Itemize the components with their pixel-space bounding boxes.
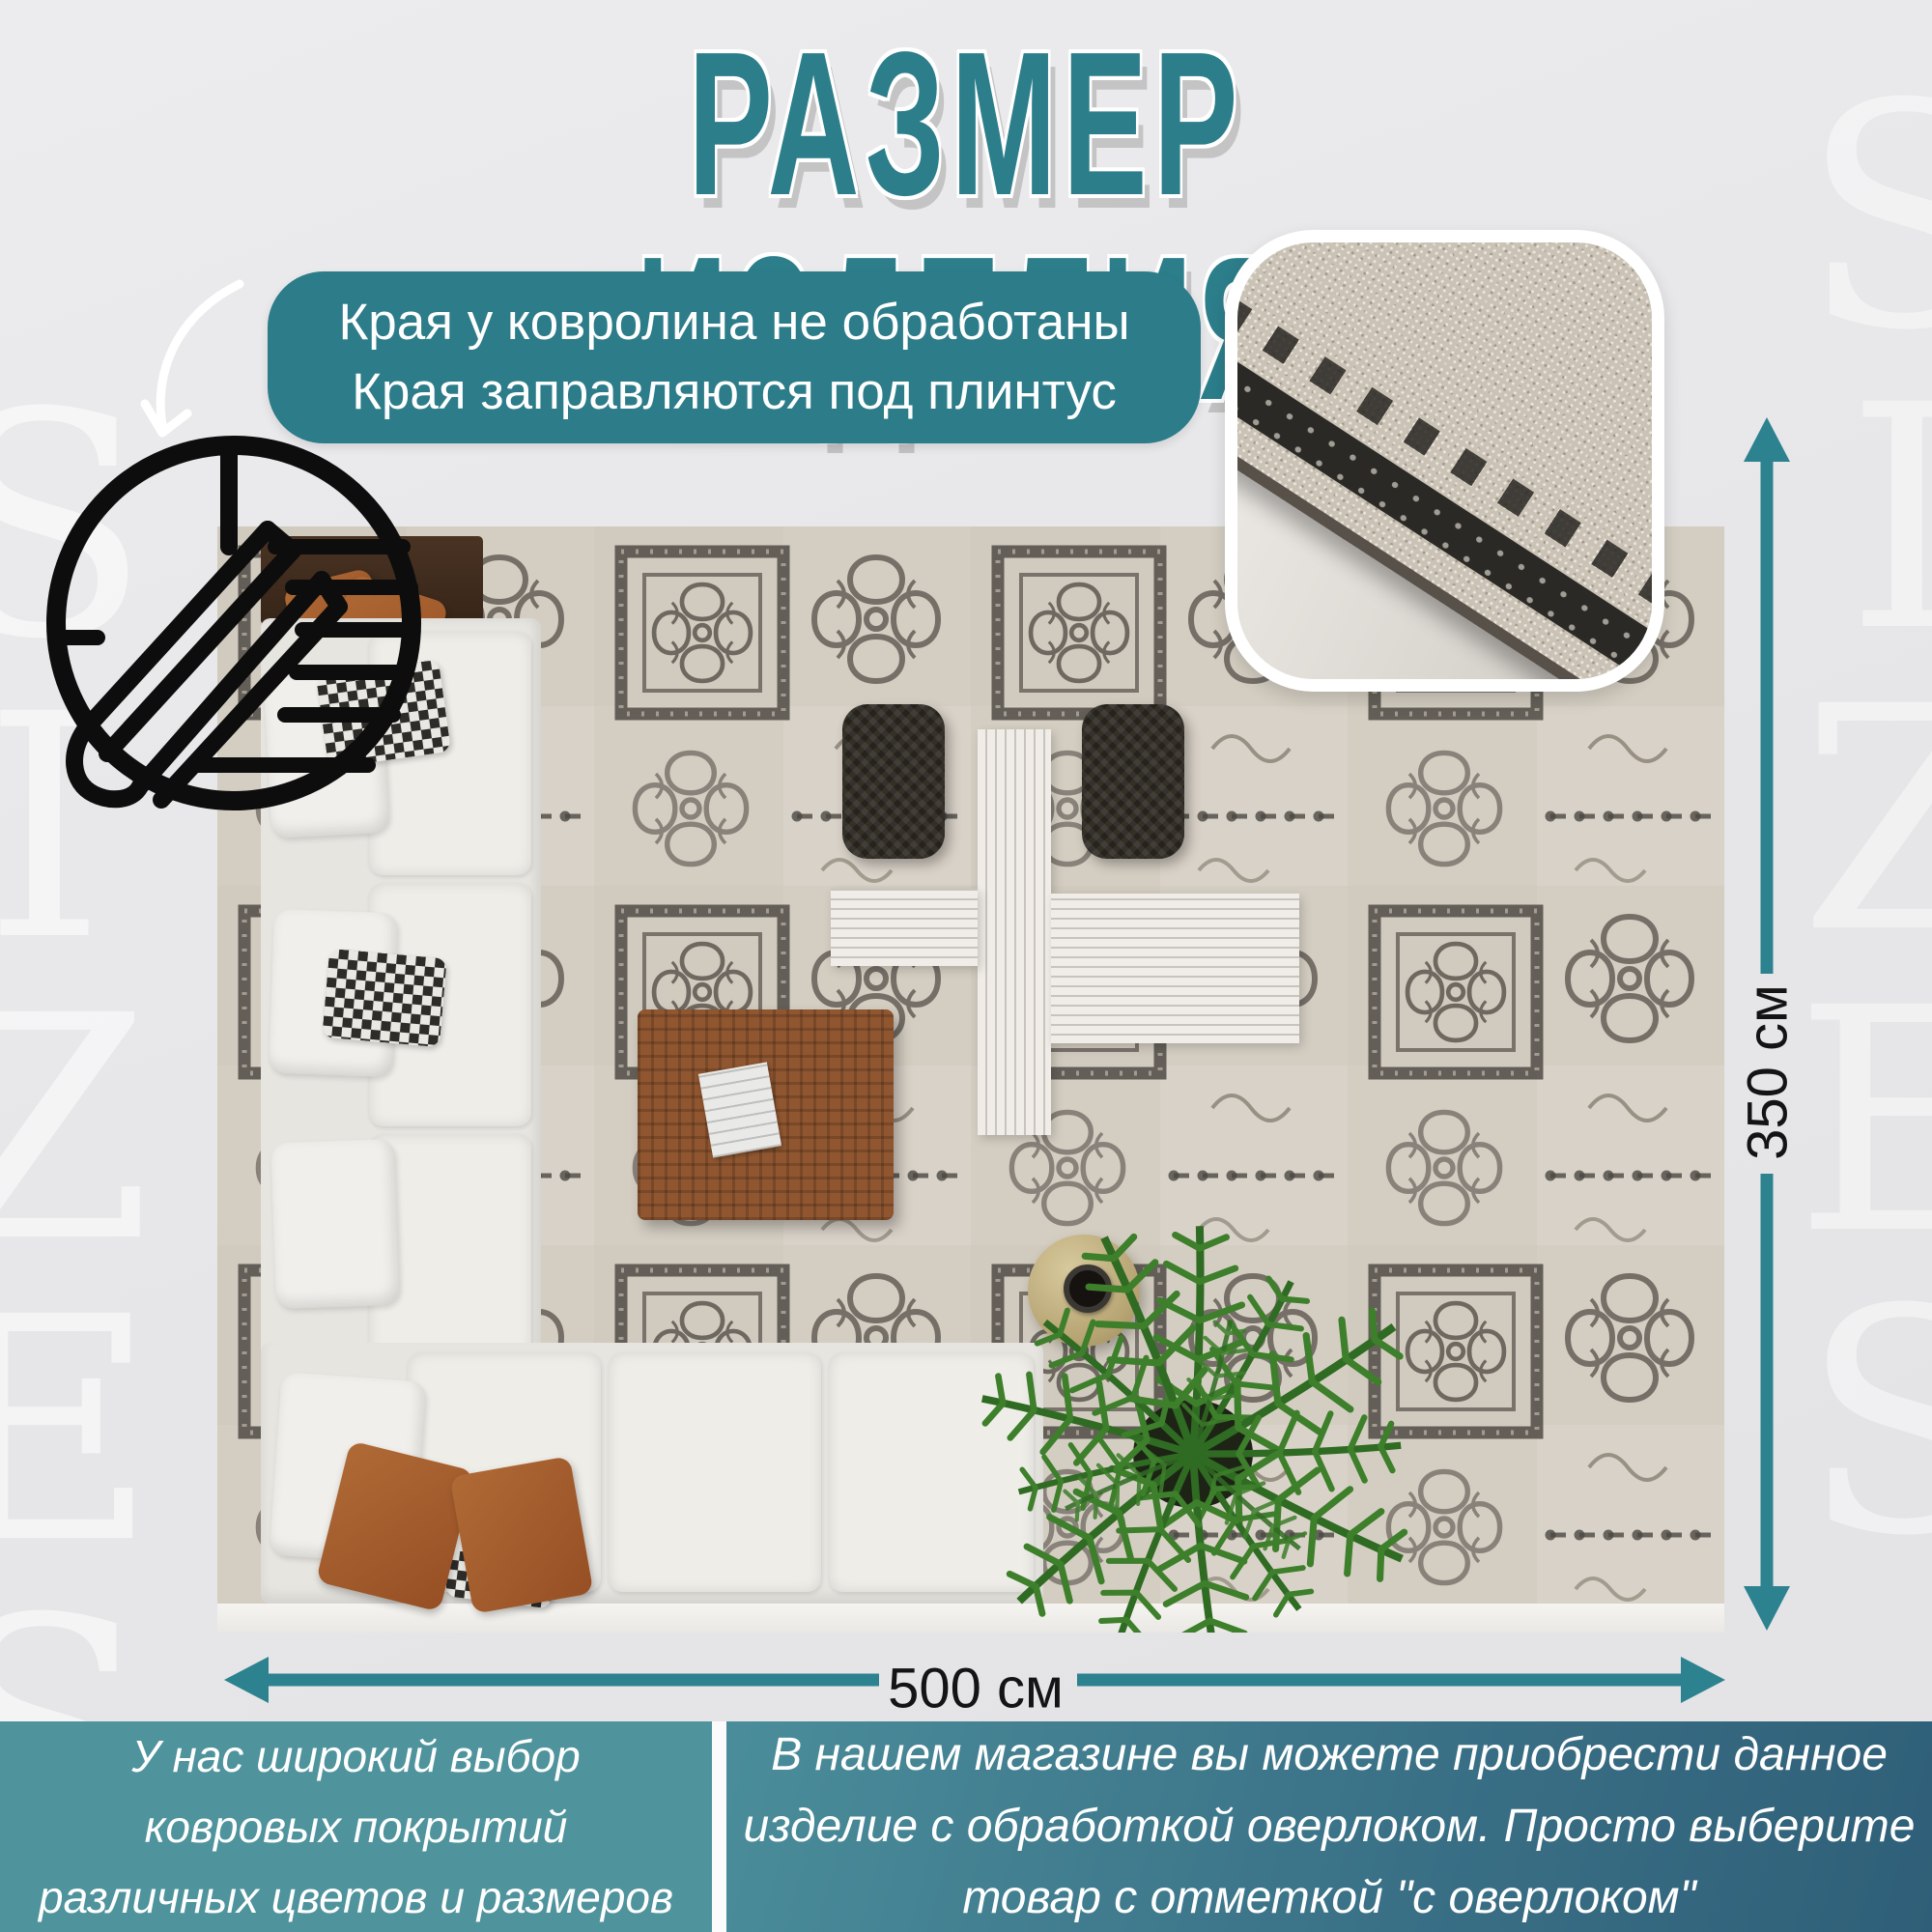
terracotta-pillow: [449, 1456, 593, 1614]
slatted-bench-right-wing: [1051, 894, 1299, 1043]
width-label: 500 см: [888, 1657, 1064, 1721]
footer-left-line: различных цветов и размеров: [39, 1862, 673, 1932]
callout-line-2: Края заправляются под плинтус: [352, 361, 1117, 423]
callout-bubble: Края у ковролина не обработаны Края запр…: [268, 271, 1201, 443]
callout-line-1: Края у ковролина не обработаны: [338, 292, 1129, 354]
palm-plant: [923, 1193, 1463, 1633]
slatted-bench-left-wing: [831, 889, 978, 966]
pouf-right: [1082, 704, 1184, 859]
footer-left-block: У нас широкий выбор ковровых покрытий ра…: [0, 1721, 712, 1932]
room-photo: [217, 526, 1724, 1633]
footer-left-line: ковровых покрытий: [145, 1792, 568, 1862]
slatted-bench-vertical: [978, 729, 1051, 1135]
footer-right-line: товар с отметкой "с оверлоком": [962, 1862, 1695, 1932]
footer-right-line: изделие с обработкой оверлоком. Просто в…: [744, 1791, 1916, 1862]
white-pillow: [270, 1139, 400, 1309]
magazine: [698, 1062, 781, 1157]
footer-divider: [712, 1721, 726, 1932]
footer-right-block: В нашем магазине вы можете приобрести да…: [726, 1721, 1932, 1932]
carpet-macro-inset: [1225, 230, 1664, 692]
product-size-infographic: SIZES SIZES РАЗМЕР ИЗДЕЛИЯ Края у коврол…: [0, 0, 1932, 1932]
footer-right-line: В нашем магазине вы можете приобрести да…: [771, 1719, 1888, 1791]
curved-arrow-icon: [124, 272, 259, 456]
height-label: 350 см: [1736, 984, 1801, 1160]
houndstooth-pillow: [322, 949, 447, 1047]
plinth-edge-icon: [43, 433, 424, 813]
carpet-corner-closeup: [1225, 230, 1664, 692]
footer-left-line: У нас широкий выбор: [131, 1721, 580, 1792]
height-arrow: 350 см: [1729, 406, 1816, 1652]
pouf-left: [842, 704, 945, 859]
